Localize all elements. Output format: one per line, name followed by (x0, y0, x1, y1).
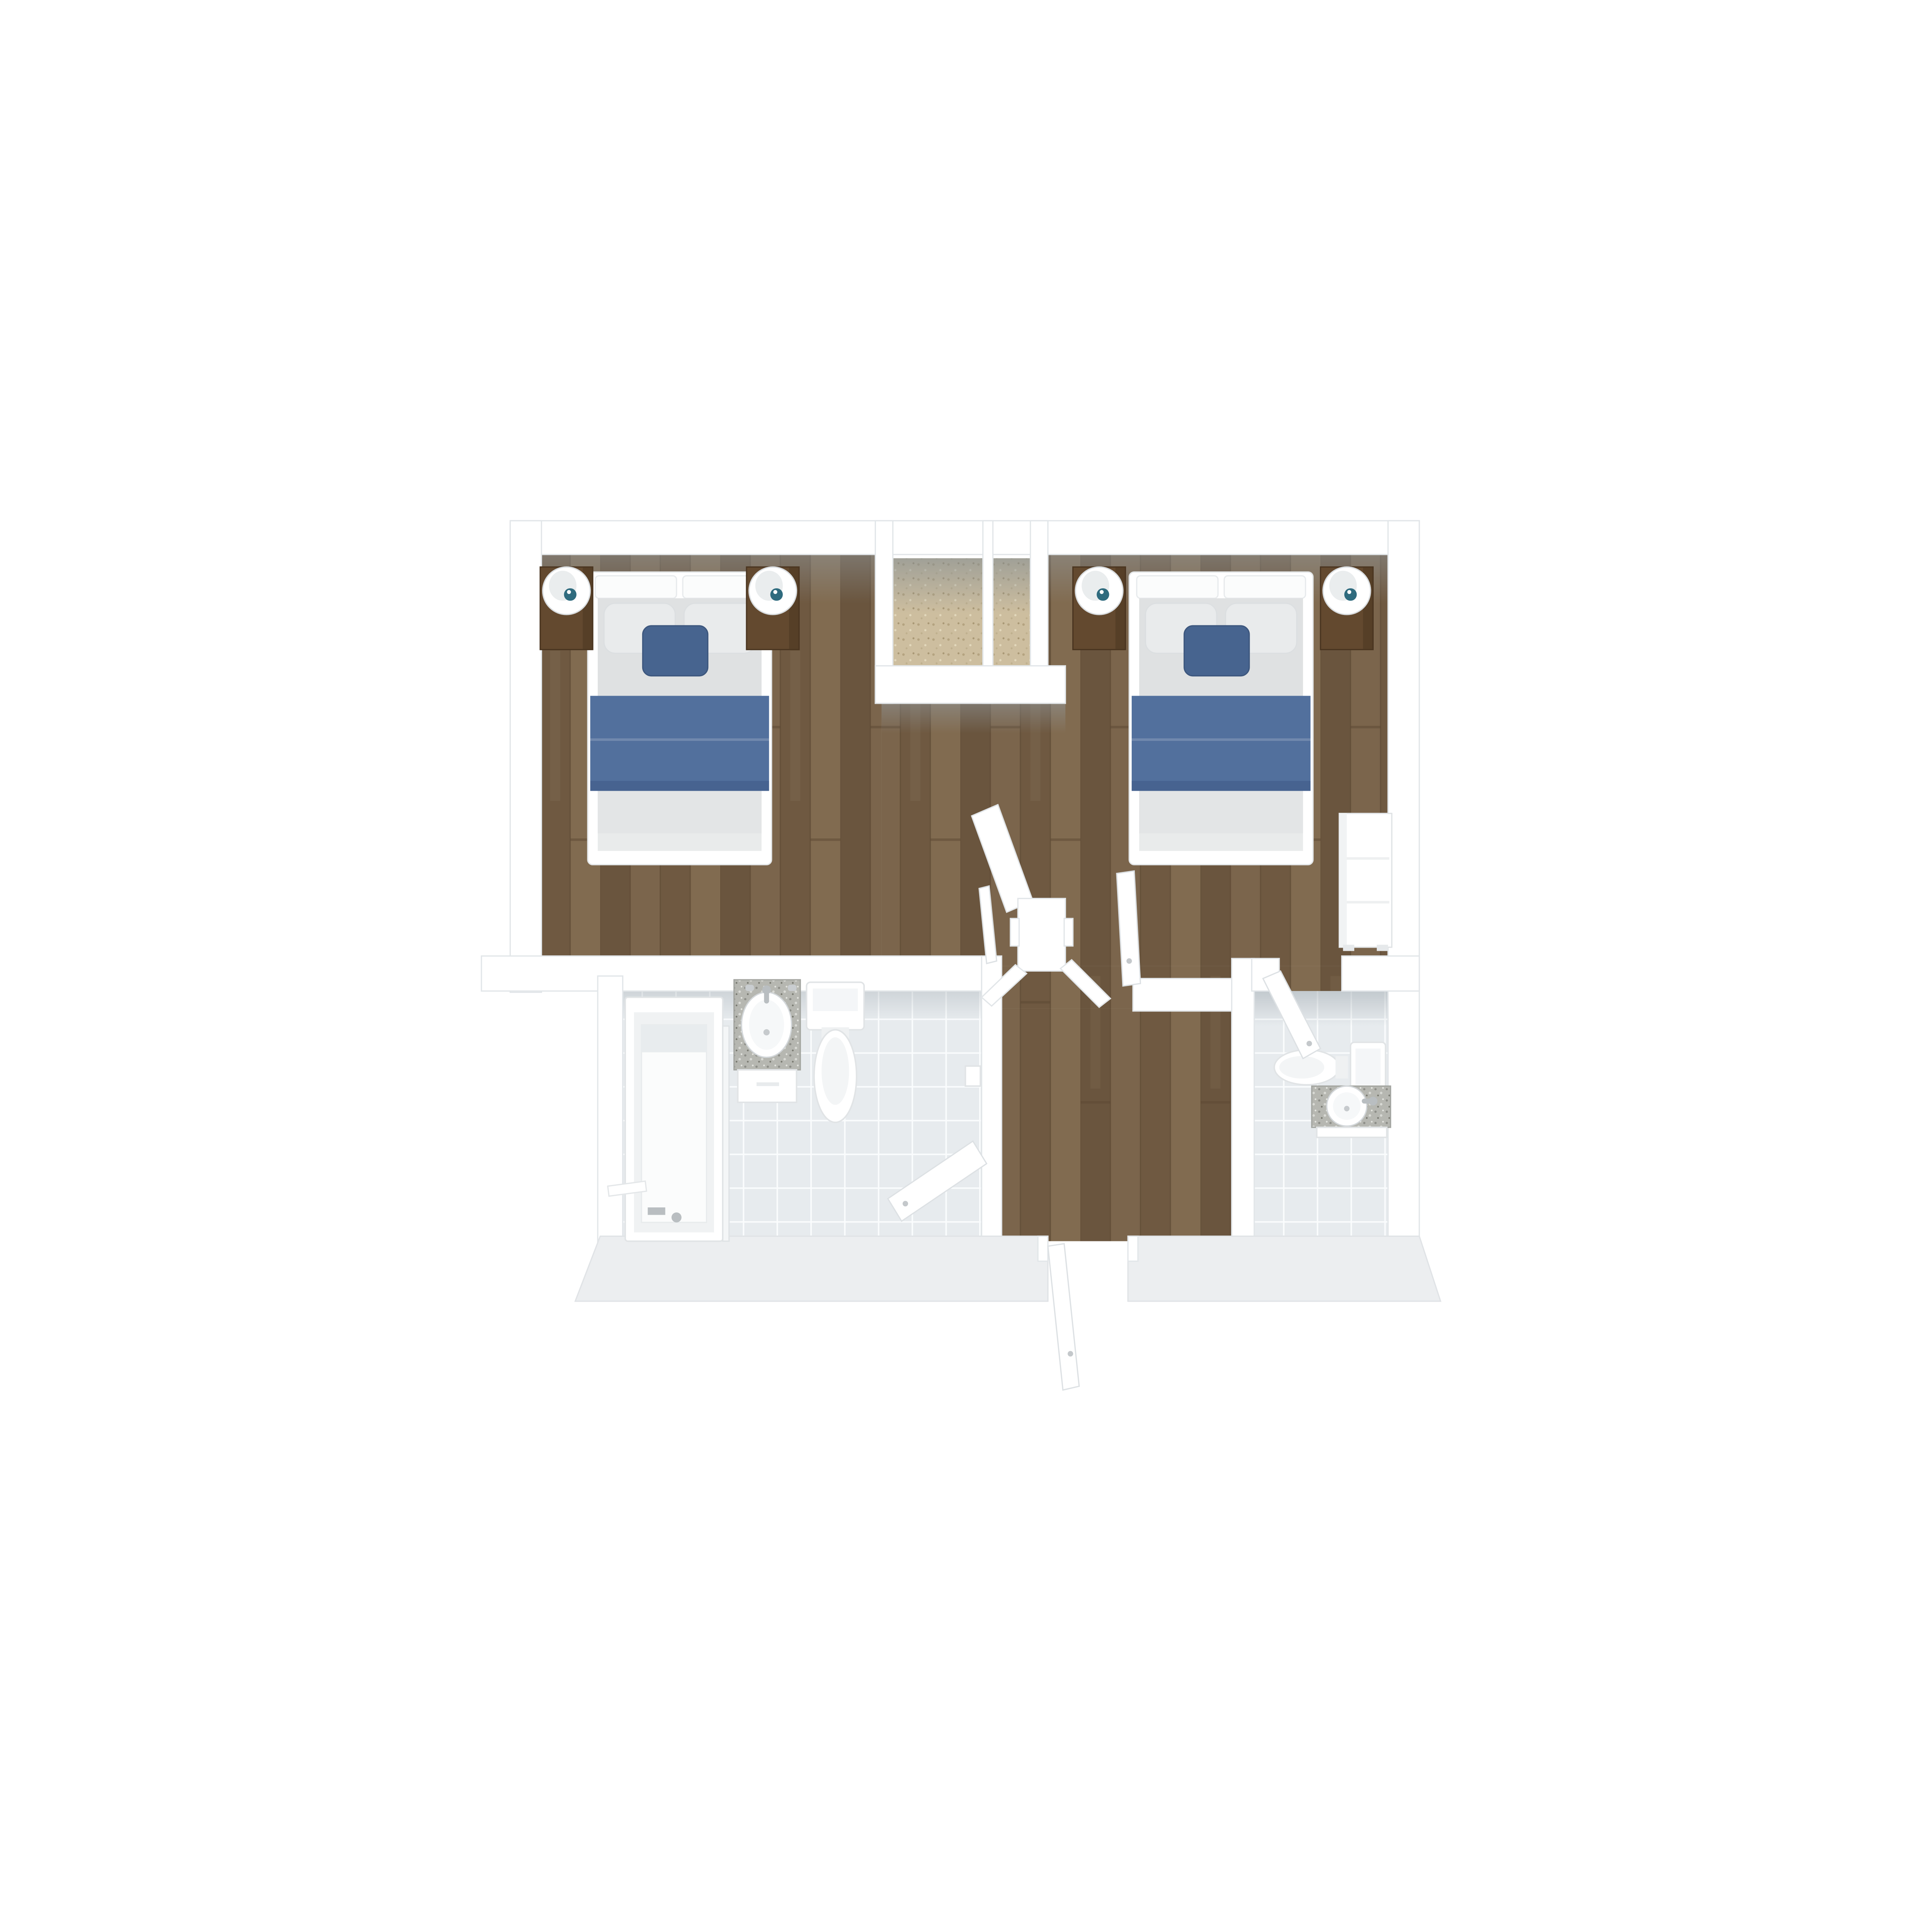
dresser-foot (1343, 945, 1354, 951)
tub-faucet (648, 1207, 665, 1215)
accent-pillow (643, 626, 707, 676)
toilet-seat-hinge (1335, 1056, 1348, 1078)
headboard-pad-left (1137, 576, 1218, 598)
toilet-seat (821, 1037, 849, 1105)
blanket (590, 696, 769, 791)
toilet-paper-holder (965, 1066, 980, 1086)
door-handle (1126, 958, 1132, 964)
mattress-foot-section (598, 791, 762, 833)
lamp-finial-highlight (1100, 590, 1104, 594)
shower-screen (723, 1026, 729, 1241)
vanity-left (734, 980, 801, 1102)
blanket-fold-line (590, 738, 769, 741)
bed-foot-band (598, 833, 762, 851)
bathtub-basin (641, 1025, 706, 1222)
east-exterior-wall (1388, 521, 1419, 1276)
door-handle (903, 1201, 908, 1206)
door-handle (1306, 1041, 1312, 1046)
bathtub-basin-shade (641, 1025, 706, 1052)
faucet-handle-right (788, 985, 797, 991)
bed-foot-band (1139, 833, 1303, 851)
vanity-right (1312, 1086, 1391, 1137)
accent-pillow (1184, 626, 1249, 676)
toilet-tank-lid (1355, 1049, 1381, 1085)
blanket-hem (1132, 781, 1311, 791)
dresser-body (1339, 814, 1392, 947)
bedroom-left-south-wall (481, 956, 981, 991)
exit-door-jamb-right (1128, 1236, 1138, 1261)
table-lamp (749, 567, 797, 615)
lamp-finial-highlight (1347, 590, 1351, 594)
hall-door-frame (1018, 899, 1065, 971)
hall-door-frame-notch-left (1010, 918, 1019, 946)
bed-left (588, 572, 772, 865)
headboard-pad-right (1224, 576, 1305, 598)
lamp-finial-highlight (773, 590, 777, 594)
bathroom-right-north-wall (1342, 956, 1419, 991)
tub-drain-fixture (672, 1212, 682, 1222)
bedroom-right-south-wall (1133, 979, 1232, 1011)
lamp-finial (770, 588, 783, 601)
sink-drain (764, 1029, 770, 1035)
blanket-hem (590, 781, 769, 791)
closet-left-backwall-shade (886, 558, 983, 613)
floor-plan-page (0, 0, 1932, 1917)
lamp-finial (564, 588, 577, 601)
dresser (1339, 814, 1392, 951)
north-exterior-wall (510, 521, 1419, 554)
lamp-finial-highlight (567, 590, 571, 594)
mattress-foot-section (1139, 791, 1303, 833)
bathtub (608, 997, 729, 1241)
blanket-fold-line (1132, 738, 1311, 741)
west-exterior-wall (510, 521, 541, 992)
toilet-seat (1279, 1056, 1325, 1078)
lamp-finial (1097, 588, 1109, 601)
blanket (1132, 696, 1311, 791)
table-lamp (543, 567, 590, 615)
south-exterior-wall-left (575, 1236, 1048, 1301)
closet-right-backwall-shade (993, 558, 1031, 613)
bathroom-right-west-wall (1232, 958, 1254, 1274)
headboard-pad-left (595, 576, 676, 598)
table-lamp (1075, 567, 1123, 615)
vanity-cabinet (1317, 1127, 1387, 1137)
sink-faucet-spout (764, 990, 769, 1004)
vanity-cabinet-handle (757, 1082, 779, 1086)
sink-basin-inner (749, 1000, 784, 1050)
faucet-handle-left (745, 985, 754, 991)
bed-right (1129, 572, 1313, 865)
dresser-foot (1377, 945, 1388, 951)
exit-door-jamb-left (1038, 1236, 1048, 1261)
dresser-side-shade (1339, 814, 1347, 947)
sink-drain (1344, 1106, 1349, 1111)
sink-faucet-spout (1362, 1098, 1374, 1103)
table-lamp (1323, 567, 1371, 615)
door-handle (1068, 1351, 1073, 1357)
toilet-tank-lid (813, 989, 858, 1011)
floor-plan-canvas (0, 0, 1932, 1917)
hall-door-frame-notch-right (1064, 918, 1073, 946)
bathroom-left-west-wall (598, 976, 623, 1276)
south-exterior-wall-right (1128, 1236, 1440, 1301)
lamp-finial (1344, 588, 1357, 601)
closet-bottomwall-shade (882, 703, 1066, 734)
closet-front-wall (875, 666, 1065, 703)
